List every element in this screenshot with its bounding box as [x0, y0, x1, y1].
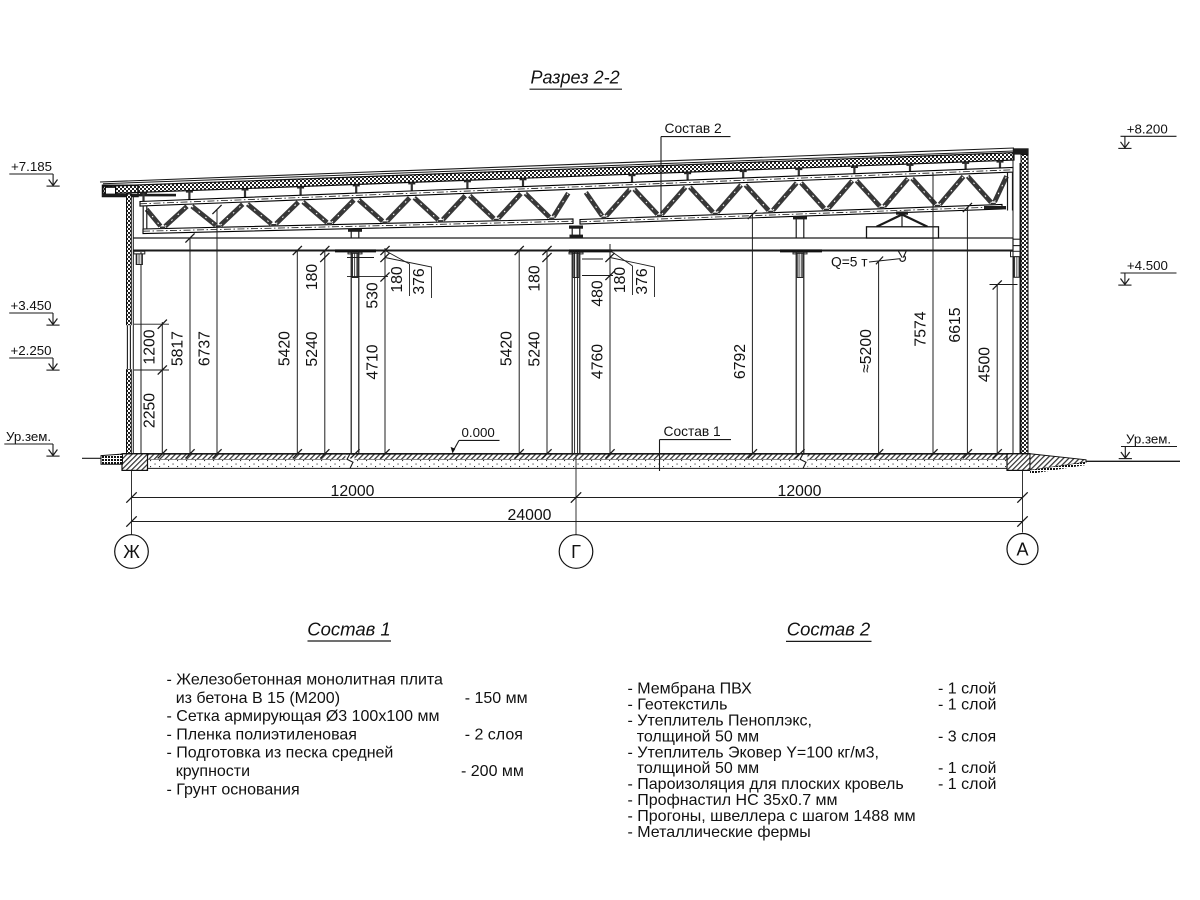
svg-text:Г: Г: [571, 542, 581, 562]
svg-text:180: 180: [526, 265, 543, 292]
svg-text:Состав 1: Состав 1: [664, 424, 721, 439]
svg-text:- Сетка армирующая Ø3 100х100: - Сетка армирующая Ø3 100х100 мм: [167, 708, 440, 725]
svg-text:6615: 6615: [947, 307, 964, 342]
svg-text:4500: 4500: [977, 347, 994, 382]
svg-text:4710: 4710: [364, 344, 381, 379]
svg-text:180: 180: [389, 266, 406, 293]
svg-text:Состав 2: Состав 2: [665, 121, 722, 136]
svg-text:7574: 7574: [912, 311, 929, 346]
svg-text:Ур.зем.: Ур.зем.: [1126, 432, 1171, 447]
svg-text:5420: 5420: [499, 331, 516, 366]
svg-text:крупности: крупности: [176, 763, 250, 780]
svg-text:- Подготовка из песка средней: - Подготовка из песка средней: [167, 745, 394, 762]
svg-text:+2.250: +2.250: [11, 343, 52, 358]
svg-text:- 1 слой: - 1 слой: [938, 776, 996, 793]
svg-text:4760: 4760: [589, 344, 606, 379]
svg-text:+8.200: +8.200: [1127, 121, 1168, 136]
svg-text:- 1 слой: - 1 слой: [938, 681, 996, 698]
svg-text:12000: 12000: [778, 483, 822, 500]
svg-text:+4.500: +4.500: [1127, 258, 1168, 273]
svg-text:376: 376: [634, 268, 651, 295]
svg-text:Состав 1: Состав 1: [307, 619, 390, 640]
svg-text:+3.450: +3.450: [11, 298, 52, 313]
svg-text:- Пароизоляция для плоских кро: - Пароизоляция для плоских кровель: [628, 776, 904, 793]
svg-text:5817: 5817: [169, 331, 186, 366]
svg-text:- Прогоны, швеллера с шагом 14: - Прогоны, швеллера с шагом 1488 мм: [628, 808, 916, 825]
svg-text:24000: 24000: [508, 507, 552, 524]
svg-text:- Профнастил НС 35х0.7 мм: - Профнастил НС 35х0.7 мм: [628, 792, 838, 809]
svg-text:- 200 мм: - 200 мм: [461, 763, 524, 780]
svg-text:- 3 слоя: - 3 слоя: [938, 728, 996, 745]
svg-text:12000: 12000: [331, 483, 375, 500]
svg-text:Ж: Ж: [123, 542, 140, 562]
svg-text:- Утеплитель Эковер Y=100 кг/м: - Утеплитель Эковер Y=100 кг/м3,: [628, 744, 879, 761]
svg-text:- Мембрана ПВХ: - Мембрана ПВХ: [628, 681, 753, 698]
svg-text:Разрез 2-2: Разрез 2-2: [531, 68, 620, 88]
svg-text:180: 180: [304, 264, 321, 291]
svg-text:480: 480: [589, 280, 606, 307]
svg-text:Ур.зем.: Ур.зем.: [6, 429, 51, 444]
svg-text:А: А: [1016, 539, 1028, 559]
svg-text:6737: 6737: [196, 331, 213, 366]
svg-text:- Утеплитель Пеноплэкс,: - Утеплитель Пеноплэкс,: [628, 712, 812, 729]
svg-text:6792: 6792: [732, 344, 749, 379]
svg-text:0.000: 0.000: [462, 425, 495, 440]
svg-text:180: 180: [612, 267, 629, 294]
svg-text:2250: 2250: [142, 393, 159, 428]
svg-text:толщиной 50 мм: толщиной 50 мм: [637, 760, 760, 777]
svg-text:толщиной 50 мм: толщиной 50 мм: [637, 728, 760, 745]
svg-text:376: 376: [411, 268, 428, 295]
svg-text:≈5200: ≈5200: [858, 329, 875, 373]
svg-text:- 1 слой: - 1 слой: [938, 697, 996, 714]
svg-text:+7.185: +7.185: [11, 159, 52, 174]
svg-text:- Железобетонная монолитная п: - Железобетонная монолитная плита: [167, 672, 444, 689]
svg-text:- 1 слой: - 1 слой: [938, 760, 996, 777]
svg-text:из бетона В 15 (М200): из бетона В 15 (М200): [176, 690, 340, 707]
svg-text:Состав 2: Состав 2: [787, 619, 871, 640]
svg-text:- 2 слоя: - 2 слоя: [465, 726, 523, 743]
svg-text:530: 530: [364, 282, 381, 309]
svg-text:- 150 мм: - 150 мм: [465, 690, 528, 707]
svg-text:Q=5 т: Q=5 т: [831, 255, 868, 270]
svg-text:5240: 5240: [304, 331, 321, 366]
svg-text:- Металлические фермы: - Металлические фермы: [628, 824, 811, 841]
svg-text:- Пленка полиэтиленовая: - Пленка полиэтиленовая: [167, 726, 357, 743]
svg-text:- Грунт основания: - Грунт основания: [167, 781, 300, 798]
svg-text:5420: 5420: [277, 331, 294, 366]
svg-text:1200: 1200: [142, 329, 159, 364]
svg-text:- Геотекстиль: - Геотекстиль: [628, 697, 728, 714]
svg-text:5240: 5240: [526, 331, 543, 366]
